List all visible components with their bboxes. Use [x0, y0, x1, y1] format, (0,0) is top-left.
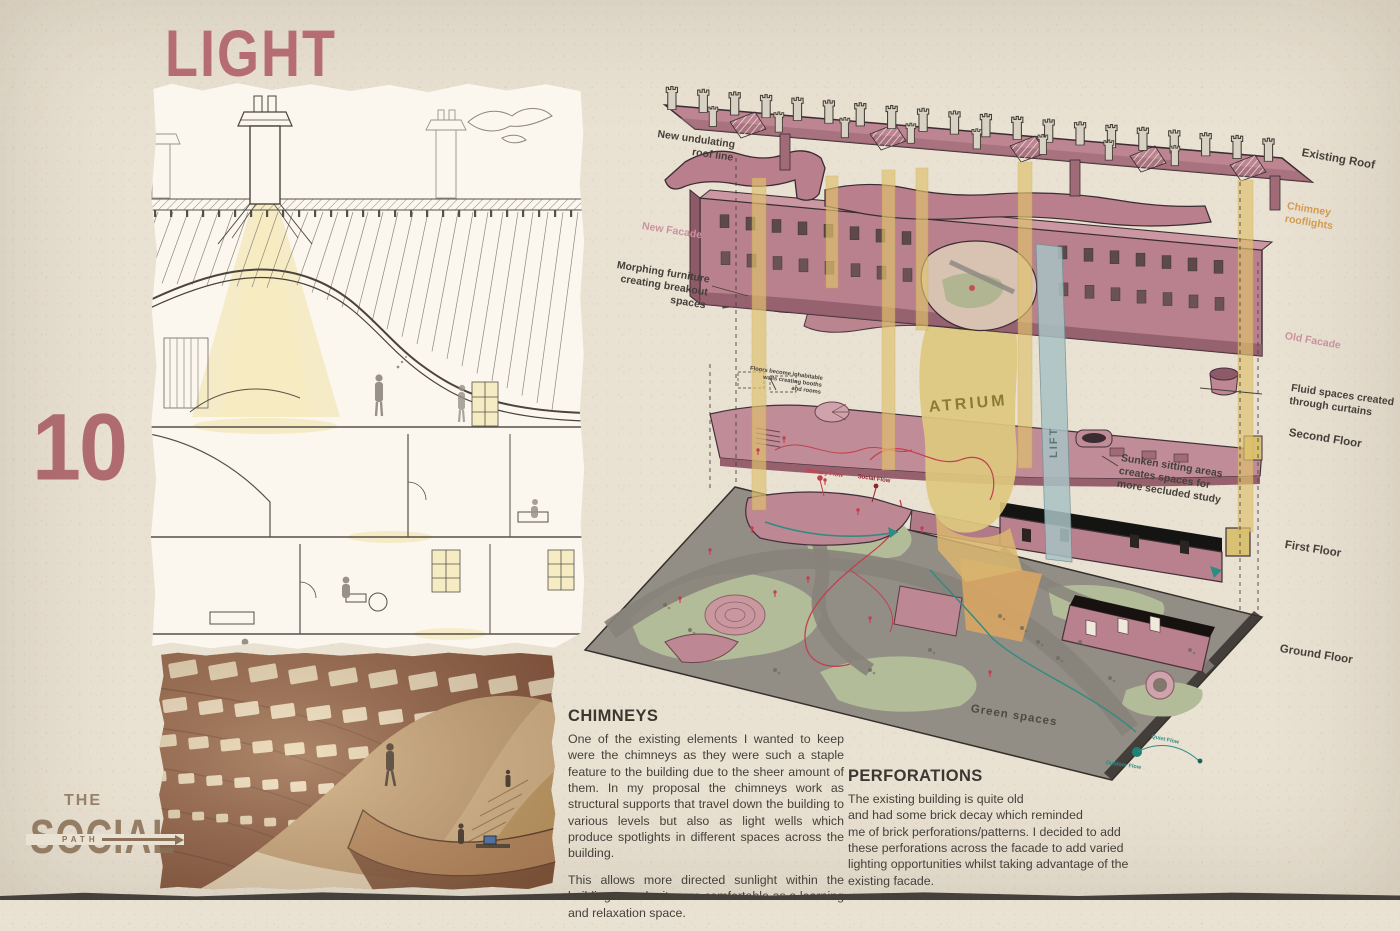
logo-path-band: PATH: [26, 834, 184, 845]
perforations-body: The existing building is quite old and h…: [848, 791, 1154, 889]
sunken-seating: [1076, 430, 1112, 447]
perforations-heading: PERFORATIONS: [848, 766, 1154, 788]
logo-path: PATH: [62, 835, 99, 844]
label-lift: LIFT: [1048, 427, 1062, 458]
presentation-board: { "page": { "title": "LIGHT", "number": …: [0, 0, 1400, 900]
page-number: 10: [32, 392, 126, 502]
interior-render-photo: [158, 652, 556, 890]
logo-the: THE: [64, 792, 180, 810]
the-social-path-logo: THE SOCIAL PATH: [30, 792, 180, 852]
path-arrow-icon: [102, 838, 175, 841]
section-drawing-panel: [150, 82, 585, 650]
section-drawing: [150, 82, 585, 650]
interior-lines: [150, 427, 585, 634]
chimneys-body-1: One of the existing elements I wanted to…: [568, 731, 844, 862]
amphitheatre: [705, 595, 765, 635]
page-title: LIGHT: [165, 16, 337, 92]
background-chimneys: [150, 110, 466, 198]
bird-sketch: [468, 109, 552, 143]
section-windows: [432, 382, 574, 592]
perforations-text-block: PERFORATIONS The existing building is qu…: [848, 766, 1154, 899]
chimneys-heading: CHIMNEYS: [568, 706, 844, 728]
roof-band: [150, 199, 585, 210]
